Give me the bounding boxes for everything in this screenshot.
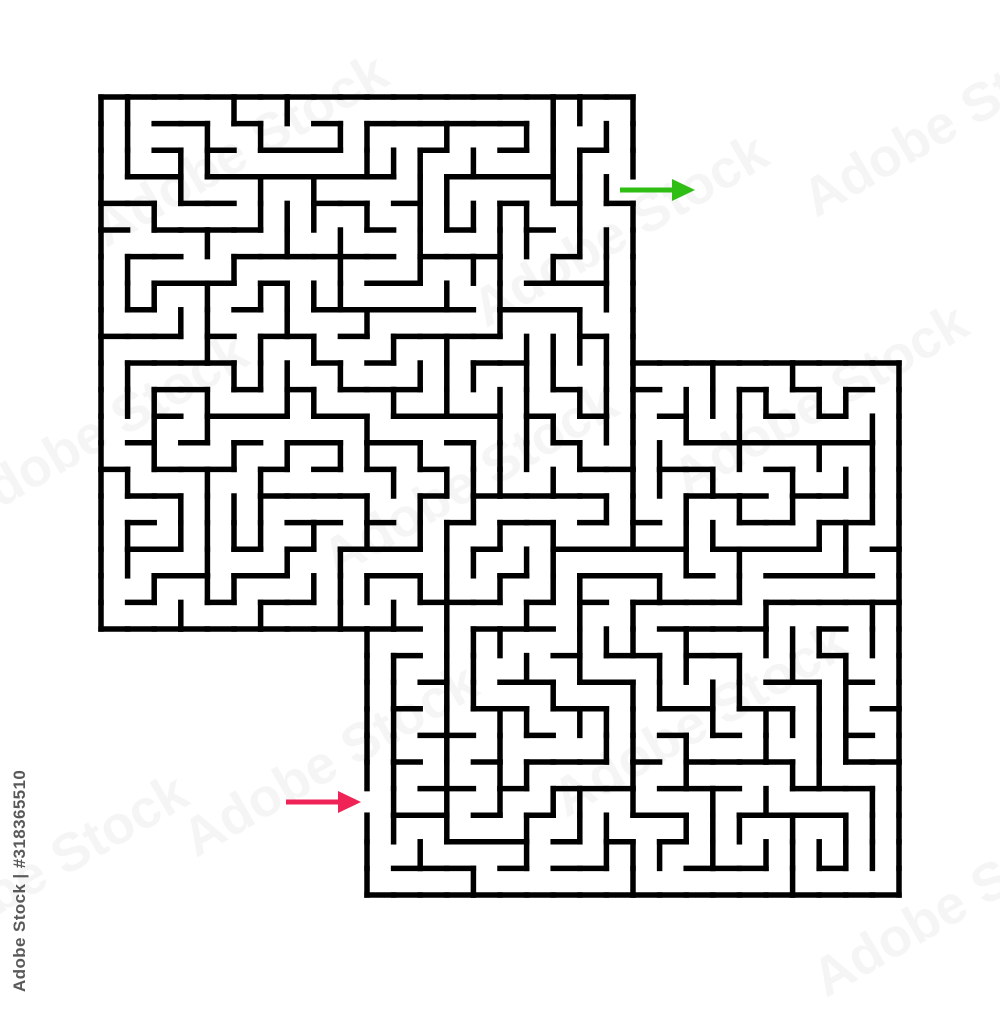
watermark-stock-id: Adobe Stock | #318365510 bbox=[10, 770, 30, 992]
maze-walls bbox=[101, 97, 899, 895]
maze-exit-arrow bbox=[620, 179, 695, 201]
stock-image-canvas: Adobe StockAdobe StockAdobe StockAdobe S… bbox=[0, 0, 1000, 1000]
maze-graphic bbox=[0, 0, 1000, 1000]
maze-entrance-arrow bbox=[286, 791, 361, 813]
